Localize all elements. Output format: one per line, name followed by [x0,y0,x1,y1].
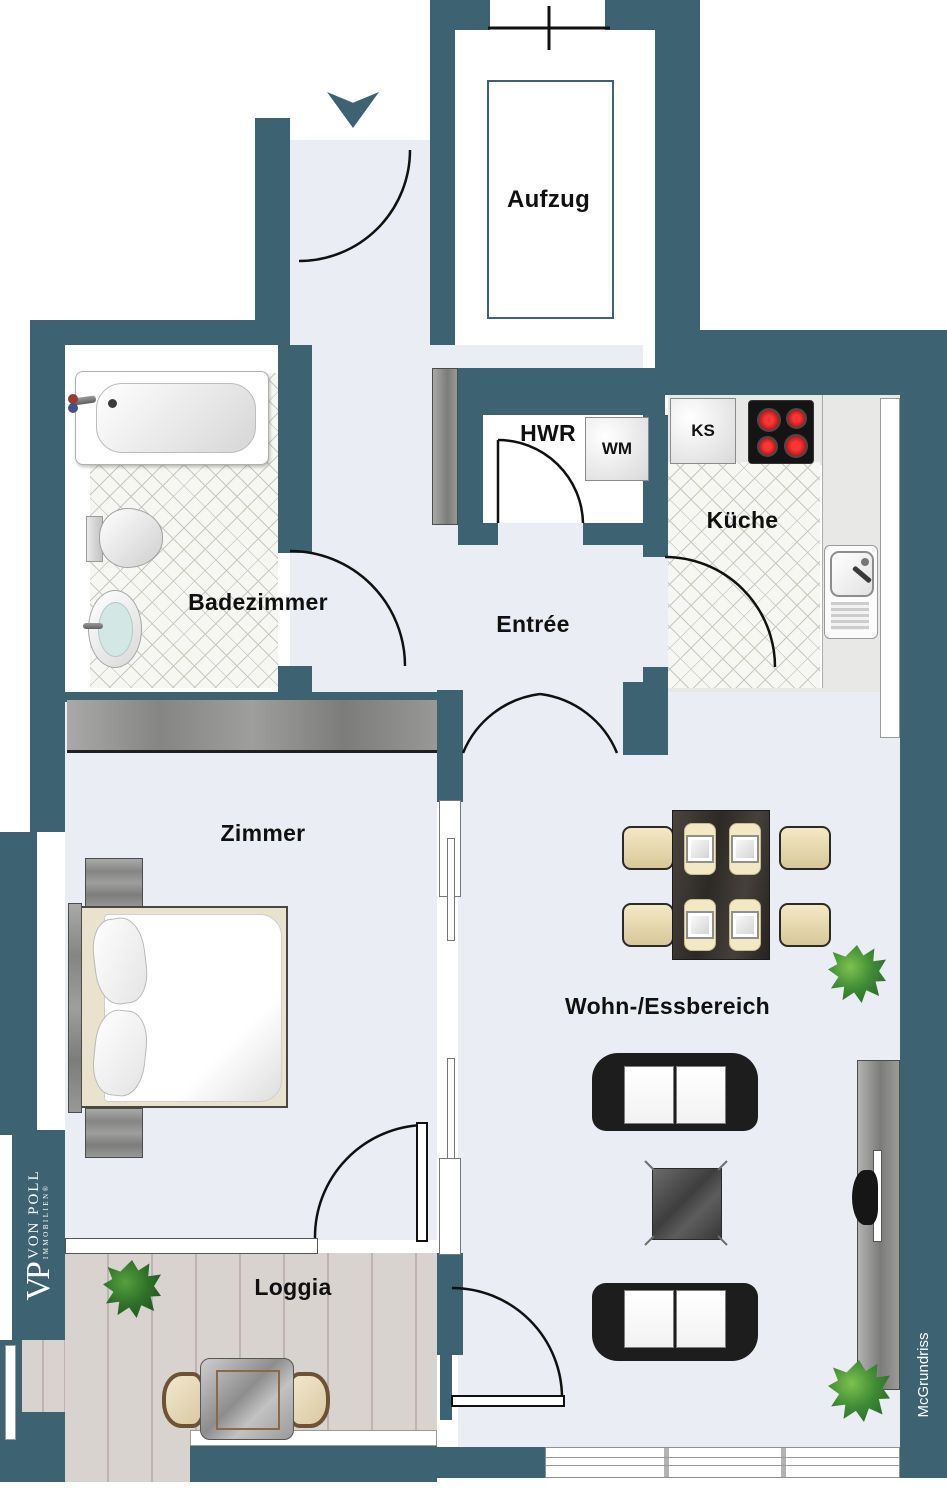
dining-chair [622,826,674,870]
sofa-cushion [676,1066,726,1124]
loggia-table [200,1358,294,1440]
stove [748,400,814,464]
wall [278,345,312,553]
living-window-band [545,1447,900,1478]
kitchen-sink-knob [861,558,869,566]
window-glass-line [546,1465,899,1466]
wall [190,1445,437,1482]
wall [458,368,665,415]
fridge-label: KS [691,421,715,441]
kitchen-window [880,398,900,738]
plate [731,835,759,863]
washing-machine-label: WM [602,439,632,459]
room-label-wohnbereich: Wohn-/Essbereich [555,993,780,1020]
sliding-door-rail [447,1058,455,1161]
loggia-left-window [5,1345,16,1440]
plate [686,835,714,863]
wall [278,666,312,692]
placemat [684,899,716,951]
room-label-zimmer: Zimmer [203,820,323,847]
von-poll-monogram: VP [20,1265,58,1300]
bed-headboard [68,903,82,1113]
sofa-cushion [676,1290,726,1348]
kitchen-sink-unit [824,545,878,639]
wall [255,118,290,345]
wall [0,832,37,1135]
zimmer-wardrobe [67,700,437,753]
bed [80,906,288,1108]
wall [437,1447,545,1478]
window-mullion [781,1448,786,1477]
coffee-table [652,1168,722,1240]
room-label-loggia: Loggia [243,1274,343,1301]
dining-chair [622,903,674,947]
bathtub-handle-blue [68,403,78,413]
wall [30,692,65,832]
wall [30,320,65,692]
loggia-table-inner [216,1370,280,1430]
sofa-cushion [624,1066,674,1124]
wall [483,523,498,545]
entree-wardrobe [432,368,458,525]
von-poll-logo: VP VON POLL IMMOBILIEN® [12,1130,65,1340]
room-label-badezimmer: Badezimmer [173,589,343,616]
window-glass-line [546,1457,899,1458]
room-label-entree: Entrée [468,611,598,638]
dining-table [672,810,770,960]
bathroom-sink-faucet [83,623,103,629]
sofa [592,1283,758,1361]
bathtub [75,371,269,465]
burner [784,434,808,458]
wall [437,690,463,802]
placemat [729,823,761,875]
wall [655,330,947,395]
wall [440,1350,452,1420]
nightstand [85,1108,143,1158]
sofa [592,1053,758,1131]
room-label-kueche: Küche [695,507,790,534]
wall [655,0,700,335]
window-mullion [664,1448,669,1477]
zimmer-loggia-sill [65,1238,318,1254]
kitchen-drainboard [831,602,869,630]
fridge: KS [670,398,736,464]
wall [458,368,483,545]
room-label-aufzug: Aufzug [487,186,610,214]
wall [430,0,490,30]
wall [430,0,455,345]
nightstand [85,858,143,908]
washing-machine: WM [585,417,649,481]
wall [623,682,665,755]
sofa-cushion [624,1290,674,1348]
mcgrundriss-text: McGrundriss [915,1333,932,1418]
bathroom-sink [88,590,142,668]
burner [786,408,807,429]
plate [731,911,759,939]
von-poll-name: VON POLL [26,1169,43,1259]
bathroom-sink-basin [98,602,133,657]
wall [583,523,643,545]
tv-screen [852,1170,878,1225]
mcgrundriss-credit: McGrundriss [903,1310,943,1440]
von-poll-sub: IMMOBILIEN® [43,1169,51,1259]
kitchen-tile-floor [668,462,820,688]
bathtub-drain [108,399,117,408]
room-label-hwr: HWR [512,420,584,447]
sliding-door-rail [447,838,455,941]
placemat [729,899,761,951]
burner [757,436,778,457]
sliding-door-panel [439,1158,461,1255]
burner [757,408,781,432]
wall [437,1253,463,1355]
dining-chair [779,826,831,870]
plate [686,911,714,939]
floor-plan: WM KS [0,0,947,1500]
kitchen-gap-floor [643,557,668,667]
placemat [684,823,716,875]
bathtub-basin [96,383,256,453]
dining-chair [779,903,831,947]
corridor-floor [290,140,430,350]
entrance-arrow-icon [327,92,379,128]
